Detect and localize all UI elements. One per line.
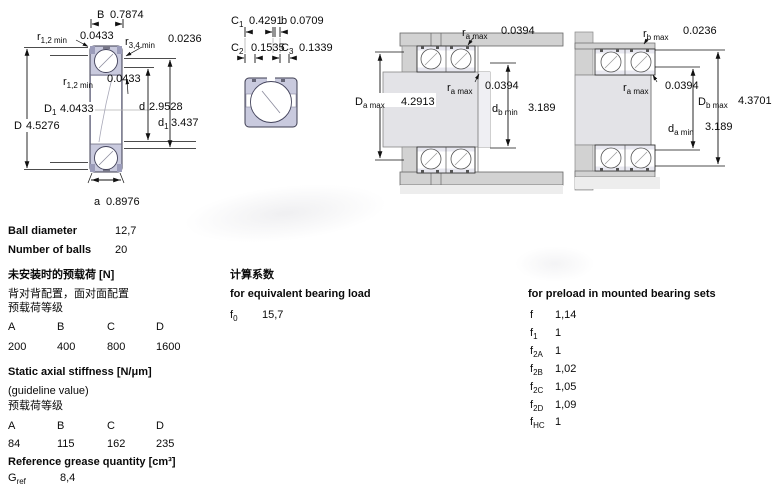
- col-header: D: [156, 321, 164, 334]
- dim-value-Db: 4.3701: [738, 95, 772, 107]
- calc-factors-subtitle: for equivalent bearing load: [230, 288, 371, 301]
- factor-value: 1: [555, 327, 561, 339]
- factor-row: f2A1: [530, 345, 561, 358]
- table-cell: 400: [57, 341, 107, 354]
- dim-value-r34: 0.0236: [168, 33, 202, 45]
- factor-value: 1: [555, 416, 561, 428]
- col-header: A: [8, 420, 57, 433]
- stiffness-headers: ABCD: [8, 420, 164, 433]
- preload-class-headers: ABCD: [8, 321, 164, 334]
- dim-label-d1: d1: [158, 117, 169, 131]
- dim-label-B: B: [97, 9, 104, 21]
- dim-value-C1: 0.4291: [249, 15, 283, 27]
- factor-row: fHC1: [530, 416, 561, 429]
- grease-title: Reference grease quantity [cm³]: [8, 456, 176, 469]
- factor-value: 1,02: [555, 363, 576, 375]
- col-header: B: [57, 420, 107, 433]
- preload-factors-title: for preload in mounted bearing sets: [528, 288, 716, 301]
- dim-label-r12-mid: r1,2 min: [63, 76, 93, 90]
- ball-diameter-value: 12,7: [115, 225, 136, 238]
- factor-value: 1,05: [555, 381, 576, 393]
- dim-value-C2: 0.1535: [251, 42, 285, 54]
- f0-symbol: f0: [230, 309, 262, 322]
- dim-label-D: D: [14, 120, 22, 132]
- table-cell: 1600: [156, 341, 180, 354]
- table-cell: 115: [57, 438, 107, 451]
- grease-symbol: Gref: [8, 472, 60, 485]
- dim-value-B: 0.7874: [110, 9, 144, 21]
- dim-label-r34: r3,4 min: [125, 36, 155, 50]
- bearing-datasheet-page: B 0.7874 r1,2 min 0.0433 r3,4 min 0.0236…: [0, 0, 779, 494]
- dim-value-b: 0.0709: [290, 15, 324, 27]
- factor-symbol: f1: [530, 327, 555, 340]
- table-cell: 84: [8, 438, 57, 451]
- dim-label-C1: C1: [231, 15, 244, 29]
- factor-row: f11: [530, 327, 561, 340]
- dim-label-Db: Db max: [698, 96, 728, 110]
- dim-value-r12-mid: 0.0433: [107, 73, 141, 85]
- factor-row: f2B1,02: [530, 363, 576, 376]
- bearing-face-diagram: C1 0.4291 b 0.0709 C2 0.1535 C3 0.1339: [228, 0, 353, 140]
- factor-row: f2D1,09: [530, 399, 576, 412]
- table-cell: 235: [156, 438, 174, 451]
- dim-value-r12-top: 0.0433: [80, 30, 114, 42]
- bearing-cross-section-diagram: B 0.7874 r1,2 min 0.0433 r3,4 min 0.0236…: [0, 0, 228, 225]
- col-header: D: [156, 420, 164, 433]
- table-cell: 200: [8, 341, 57, 354]
- number-of-balls-label: Number of balls: [8, 244, 91, 257]
- preload-unmounted-title: 未安装时的预载荷 [N]: [8, 269, 114, 282]
- grease-row: Gref8,4: [8, 472, 75, 485]
- dim-label-r12-top: r1,2 min: [37, 31, 67, 45]
- col-header: C: [107, 321, 156, 334]
- factor-symbol: f2B: [530, 363, 555, 376]
- factor-value: 1,14: [555, 309, 576, 321]
- factor-symbol: fHC: [530, 416, 555, 429]
- factor-row: f2C1,05: [530, 381, 576, 394]
- dim-value-d: 2.9528: [149, 101, 183, 113]
- factor-row: f1,14: [530, 309, 576, 322]
- f0-row: f015,7: [230, 309, 283, 322]
- ball-diameter-label: Ball diameter: [8, 225, 77, 238]
- col-header: C: [107, 420, 156, 433]
- stiffness-values: 84115162235: [8, 438, 174, 451]
- watermark: [515, 246, 595, 282]
- preload-arrangement-label: 背对背配置，面对面配置: [8, 288, 129, 301]
- table-cell: 162: [107, 438, 156, 451]
- dim-value-Da: 4.2913: [401, 96, 435, 108]
- abutment-diagram-housing: rb max 0.0236 ra max 0.0394 Db max 4.370…: [570, 0, 779, 195]
- dim-label-da: da min: [668, 123, 694, 137]
- abutment-diagram-shaft: ra max 0.0394 ra max 0.0394 db min 3.189…: [340, 0, 568, 195]
- dim-value-ra-mid: 0.0394: [485, 80, 519, 92]
- stiffness-title: Static axial stiffness [N/μm]: [8, 366, 152, 379]
- dim-value-C3: 0.1339: [299, 42, 333, 54]
- preload-class-label: 预载荷等级: [8, 302, 63, 315]
- table-cell: 800: [107, 341, 156, 354]
- dim-value-ra: 0.0394: [665, 80, 699, 92]
- dim-value-d1: 3.437: [171, 117, 199, 129]
- f0-value: 15,7: [262, 309, 283, 321]
- factor-value: 1: [555, 345, 561, 357]
- dim-label-d: d: [139, 101, 145, 113]
- dim-label-C2: C2: [231, 42, 244, 56]
- stiffness-subtitle: (guideline value): [8, 385, 89, 398]
- dim-label-a: a: [94, 196, 101, 208]
- dim-value-db: 3.189: [528, 102, 556, 114]
- dim-label-b: b: [281, 15, 287, 27]
- grease-value: 8,4: [60, 472, 75, 484]
- dim-value-ra-top: 0.0394: [501, 25, 535, 37]
- dim-label-db: db min: [492, 103, 518, 117]
- dim-label-ra-top: ra max: [462, 27, 487, 41]
- stiffness-class-label: 预载荷等级: [8, 400, 63, 413]
- factor-symbol: f2A: [530, 345, 555, 358]
- dim-value-D1: 4.0433: [60, 103, 94, 115]
- preload-values: 2004008001600: [8, 341, 180, 354]
- factor-symbol: f2D: [530, 399, 555, 412]
- calc-factors-title: 计算系数: [230, 269, 274, 282]
- dim-value-rb: 0.0236: [683, 25, 717, 37]
- col-header: A: [8, 321, 57, 334]
- factor-symbol: f2C: [530, 381, 555, 394]
- dim-label-C3: C3: [281, 42, 294, 56]
- factor-value: 1,09: [555, 399, 576, 411]
- col-header: B: [57, 321, 107, 334]
- factor-symbol: f: [530, 309, 555, 322]
- dim-value-a: 0.8976: [106, 196, 140, 208]
- bearing-outline-icon: [245, 77, 297, 127]
- number-of-balls-value: 20: [115, 244, 127, 257]
- dim-value-D: 4.5276: [26, 120, 60, 132]
- dim-value-da: 3.189: [705, 121, 733, 133]
